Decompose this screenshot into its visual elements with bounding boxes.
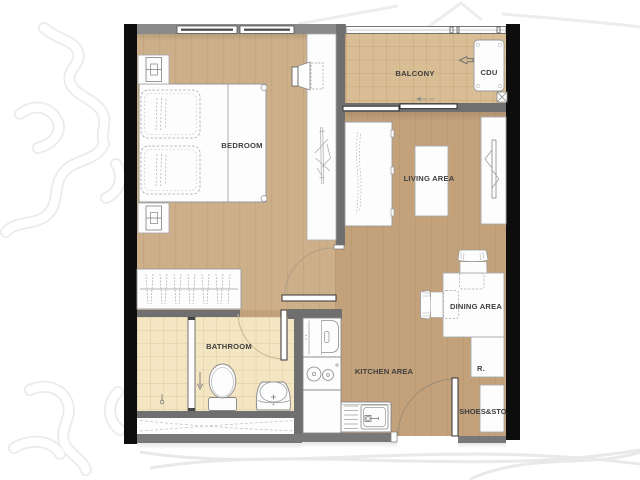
- svg-text:BATHROOM: BATHROOM: [206, 342, 252, 351]
- svg-text:R.: R.: [477, 364, 485, 373]
- svg-text:KITCHEN AREA: KITCHEN AREA: [355, 367, 414, 376]
- svg-text:LIVING AREA: LIVING AREA: [404, 174, 455, 183]
- svg-text:CDU: CDU: [480, 68, 497, 77]
- svg-text:BALCONY: BALCONY: [395, 69, 434, 78]
- svg-text:BEDROOM: BEDROOM: [221, 141, 262, 150]
- svg-text:DINING AREA: DINING AREA: [450, 302, 502, 311]
- svg-text:SHOES&STO.: SHOES&STO.: [459, 407, 509, 416]
